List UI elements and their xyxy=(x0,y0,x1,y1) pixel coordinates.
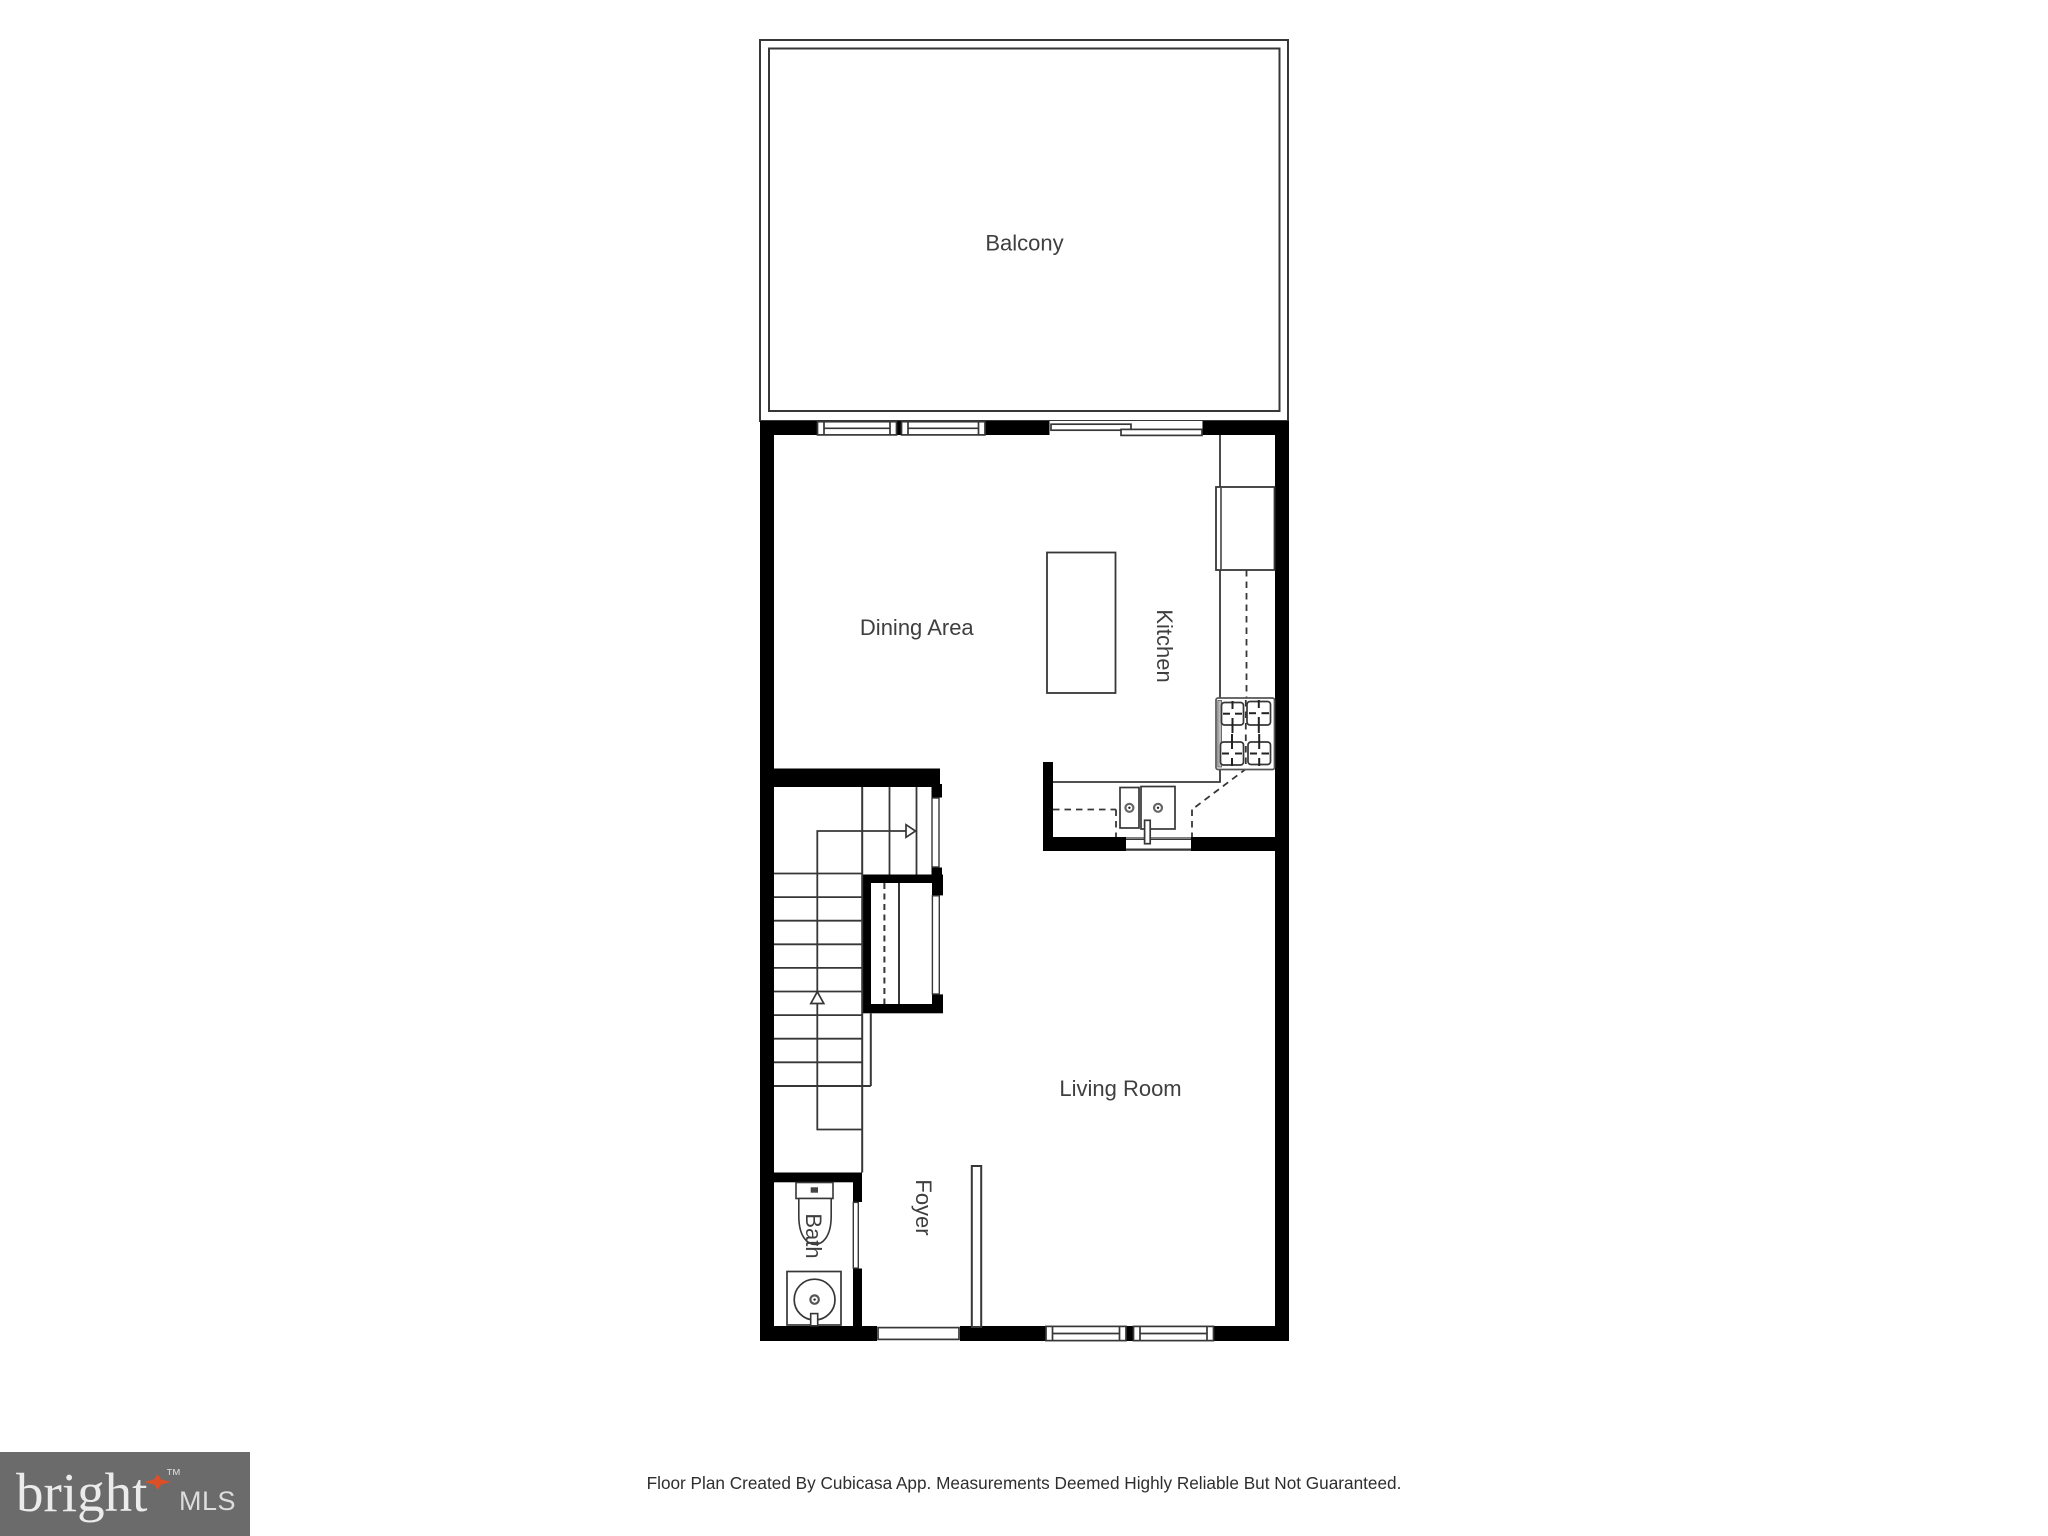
svg-text:Balcony: Balcony xyxy=(985,230,1063,255)
svg-text:Dining Area: Dining Area xyxy=(860,615,975,640)
svg-text:Foyer: Foyer xyxy=(911,1179,936,1235)
svg-text:Bath: Bath xyxy=(801,1213,826,1258)
svg-text:Living Room: Living Room xyxy=(1059,1076,1181,1101)
svg-text:Kitchen: Kitchen xyxy=(1152,609,1177,682)
